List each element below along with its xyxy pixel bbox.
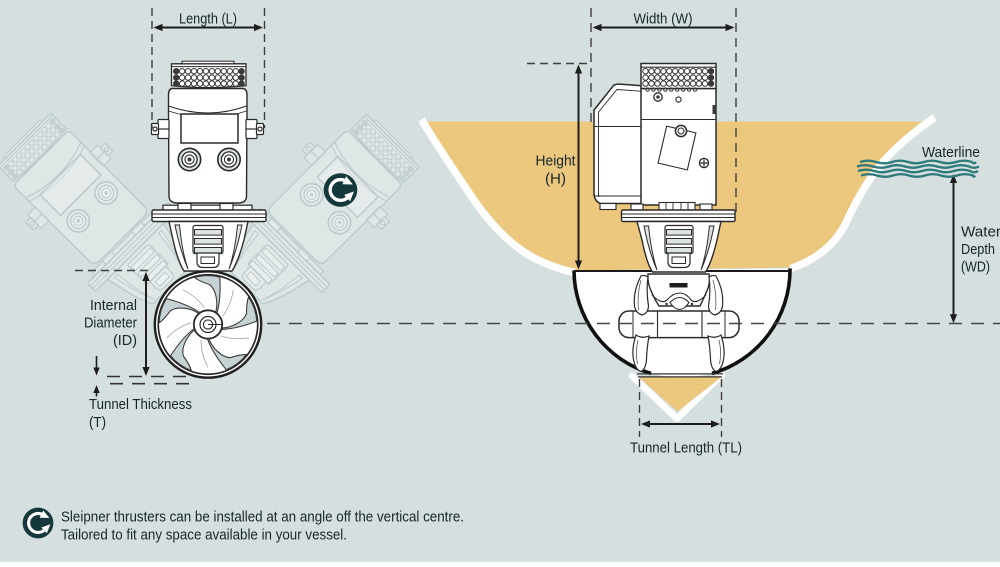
svg-text:Internal: Internal [90, 297, 137, 314]
svg-text:Height: Height [536, 153, 577, 170]
svg-text:Sleipner thrusters can be inst: Sleipner thrusters can be installed at a… [61, 509, 464, 526]
svg-text:(T): (T) [89, 414, 106, 431]
svg-text:Width (W): Width (W) [634, 11, 693, 28]
svg-text:Tunnel Length (TL): Tunnel Length (TL) [630, 440, 742, 457]
svg-text:(H): (H) [545, 171, 566, 188]
svg-text:Tunnel Thickness: Tunnel Thickness [89, 396, 192, 413]
svg-text:Waterline: Waterline [922, 144, 980, 161]
svg-text:(WD): (WD) [961, 259, 990, 276]
svg-text:Length (L): Length (L) [179, 11, 237, 28]
svg-text:Water: Water [961, 224, 1000, 241]
svg-text:Tailored to fit any space avai: Tailored to fit any space available in y… [61, 527, 347, 544]
svg-text:Depth: Depth [961, 241, 995, 258]
svg-text:(ID): (ID) [113, 332, 137, 349]
svg-text:Diameter: Diameter [84, 315, 137, 332]
